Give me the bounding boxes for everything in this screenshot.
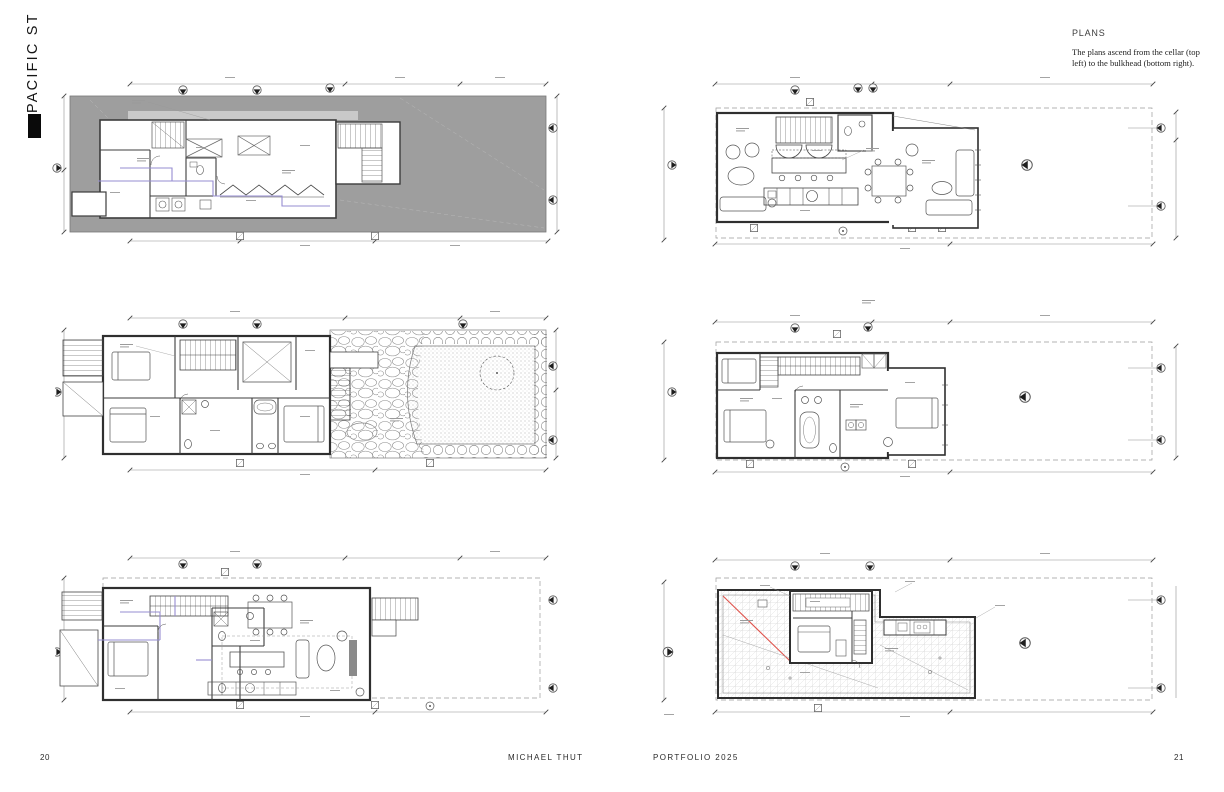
cellar-plan-drawing xyxy=(50,66,570,258)
retaining-band xyxy=(128,111,358,120)
commentary-block: PLANS The plans ascend from the cellar (… xyxy=(1072,28,1208,69)
bulkhead xyxy=(790,591,872,668)
portfolio-spread: PACIFIC ST PLANS The plans ascend from t… xyxy=(0,0,1224,792)
upper-floor-plan-drawing xyxy=(650,300,1195,490)
rear-stair xyxy=(372,598,418,636)
project-label: PACIFIC ST xyxy=(25,16,41,113)
garden-floor-plan-drawing xyxy=(55,300,570,490)
stair xyxy=(150,596,228,616)
parlor-floor-plan-drawing xyxy=(650,66,1195,258)
powder-room xyxy=(838,115,872,151)
footer-portfolio: PORTFOLIO 2025 xyxy=(653,753,739,762)
footer-author: MICHAEL THUT xyxy=(508,753,583,762)
front-stoop xyxy=(63,340,103,416)
project-label-marker xyxy=(28,114,41,138)
commentary-heading: PLANS xyxy=(1072,28,1208,38)
front-stoop xyxy=(60,592,102,686)
roof-bulkhead-plan-drawing xyxy=(650,535,1195,730)
left-page-number: 20 xyxy=(40,753,50,762)
garden xyxy=(330,330,547,458)
top-floor-plan-drawing xyxy=(55,535,570,730)
right-page-number: 21 xyxy=(1174,753,1184,762)
building-outline xyxy=(103,588,370,700)
outdoor-kitchen xyxy=(884,620,946,635)
